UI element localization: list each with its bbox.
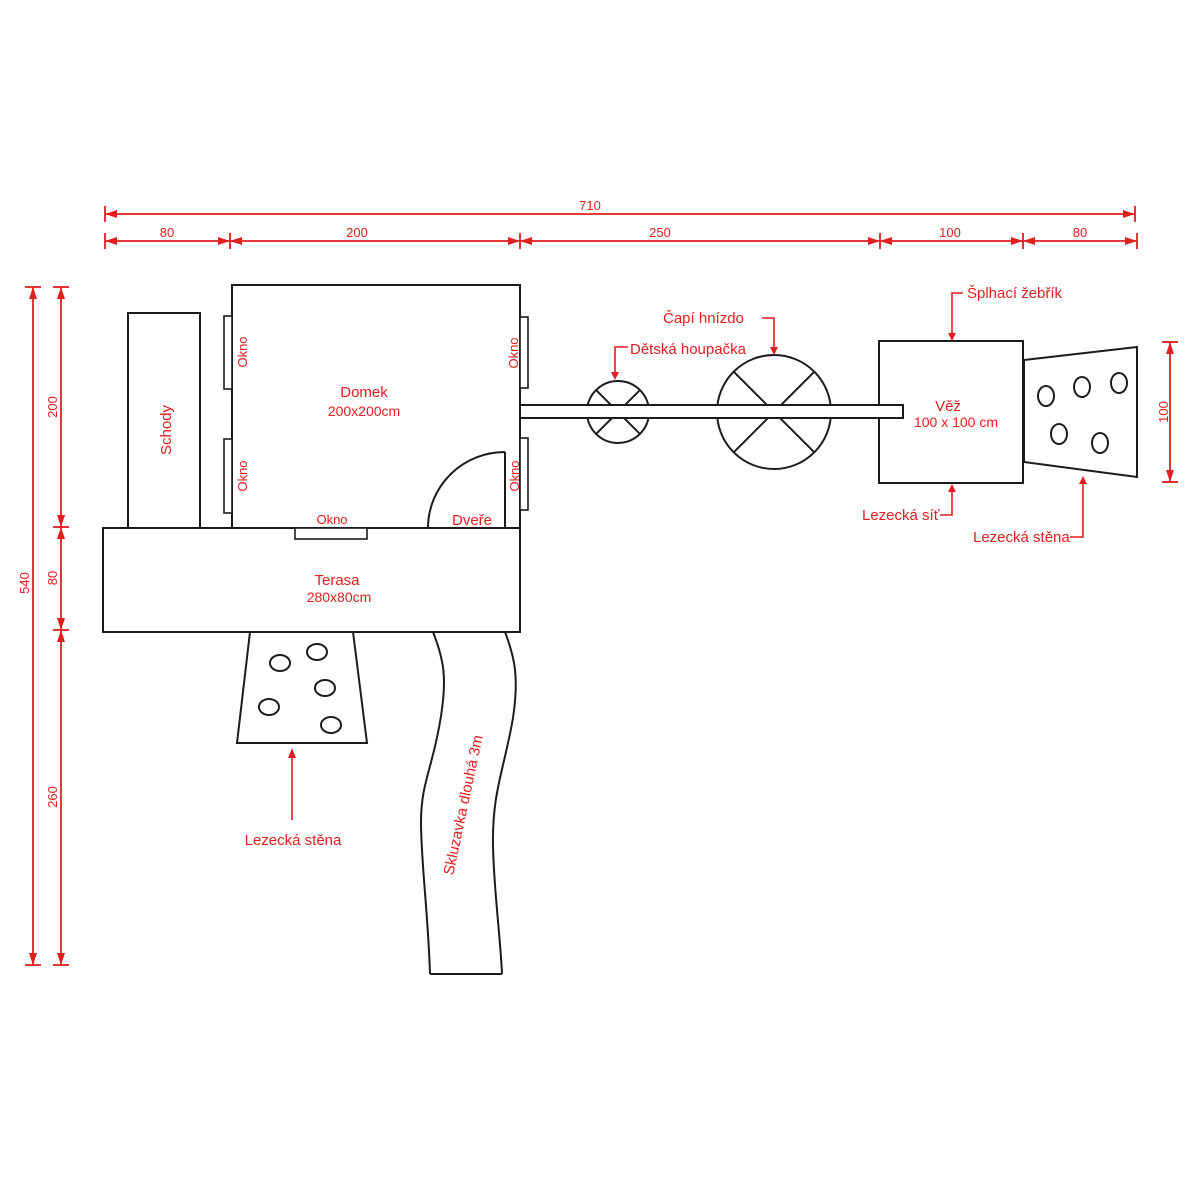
climbing-hold bbox=[315, 680, 335, 696]
structure-lines bbox=[103, 285, 1137, 974]
dim-top-80a-label: 80 bbox=[160, 225, 174, 240]
dim-left-total-label: 540 bbox=[17, 572, 32, 594]
terrace-outline bbox=[103, 528, 520, 632]
climbing-hold bbox=[1074, 377, 1090, 397]
leader-arrowhead bbox=[948, 333, 956, 341]
climbing-ladder-label: Šplhací žebřík bbox=[967, 285, 1063, 302]
climbing-net-label: Lezecká síť bbox=[862, 507, 940, 524]
climbing-hold bbox=[321, 717, 341, 733]
leader-arrowhead bbox=[288, 748, 296, 758]
dim-right-100-label: 100 bbox=[1156, 401, 1171, 423]
leader-climbing-ladder bbox=[952, 293, 963, 335]
leader-arrowhead bbox=[770, 347, 778, 355]
climbing-hold bbox=[307, 644, 327, 660]
window-label-bottom: Okno bbox=[316, 512, 347, 527]
terrace-size-label: 280x80cm bbox=[307, 589, 372, 605]
swing-label: Dětská houpačka bbox=[630, 341, 747, 358]
slide-label: Skluzavka dlouhá 3m bbox=[440, 734, 486, 877]
leader-arrowhead bbox=[611, 372, 619, 380]
climbing-wall-right-label: Lezecká stěna bbox=[973, 529, 1070, 546]
climbing-hold bbox=[1051, 424, 1067, 444]
dim-top-80b-label: 80 bbox=[1073, 225, 1087, 240]
door-label: Dveře bbox=[452, 512, 492, 529]
stork-nest-label: Čapí hnízdo bbox=[663, 310, 744, 327]
terrace-name-label: Terasa bbox=[314, 572, 360, 589]
swing-beam bbox=[520, 405, 903, 418]
climbing-hold bbox=[270, 655, 290, 671]
playground-plan-page: 710 80 200 250 100 80 540 200 80 260 100… bbox=[0, 0, 1200, 1200]
dim-top-100-label: 100 bbox=[939, 225, 961, 240]
climbing-hold bbox=[259, 699, 279, 715]
house-name-label: Domek bbox=[340, 384, 388, 401]
playground-plan-svg: 710 80 200 250 100 80 540 200 80 260 100… bbox=[0, 0, 1200, 1200]
climbing-wall-left-label: Lezecká stěna bbox=[245, 832, 342, 849]
leader-climbing-wall-right bbox=[1070, 482, 1083, 537]
leader-swing bbox=[615, 347, 628, 374]
climbing-hold bbox=[1038, 386, 1054, 406]
climbing-hold bbox=[1111, 373, 1127, 393]
climbing-wall-left-shape bbox=[237, 632, 367, 743]
window-label-left-top: Okno bbox=[235, 336, 250, 367]
dim-top-total-label: 710 bbox=[579, 198, 601, 213]
dim-top-200-label: 200 bbox=[346, 225, 368, 240]
window-rect-right-top bbox=[520, 317, 528, 388]
window-label-right-top: Okno bbox=[506, 337, 521, 368]
climbing-wall-right-shape bbox=[1024, 347, 1137, 477]
stairs-label: Schody bbox=[158, 404, 175, 455]
leader-stork-nest bbox=[762, 318, 774, 349]
leader-climbing-net bbox=[940, 490, 952, 515]
window-rect-left-bottom bbox=[224, 439, 232, 513]
window-label-left-bottom: Okno bbox=[235, 460, 250, 491]
tower-name-label: Věž bbox=[935, 398, 961, 415]
window-rect-left-top bbox=[224, 316, 232, 389]
dim-left-200-label: 200 bbox=[45, 396, 60, 418]
dim-top-250-label: 250 bbox=[649, 225, 671, 240]
window-label-right-bottom: Okno bbox=[507, 460, 522, 491]
slide-right-edge bbox=[493, 632, 516, 974]
dim-left-260-label: 260 bbox=[45, 786, 60, 808]
dim-left-80-label: 80 bbox=[45, 571, 60, 585]
leader-arrowhead bbox=[1079, 476, 1087, 484]
house-size-label: 200x200cm bbox=[328, 403, 400, 419]
climbing-hold bbox=[1092, 433, 1108, 453]
tower-size-label: 100 x 100 cm bbox=[914, 414, 998, 430]
window-rect-bottom bbox=[295, 528, 367, 539]
slide-left-edge bbox=[421, 632, 444, 974]
leader-arrowhead bbox=[948, 484, 956, 492]
